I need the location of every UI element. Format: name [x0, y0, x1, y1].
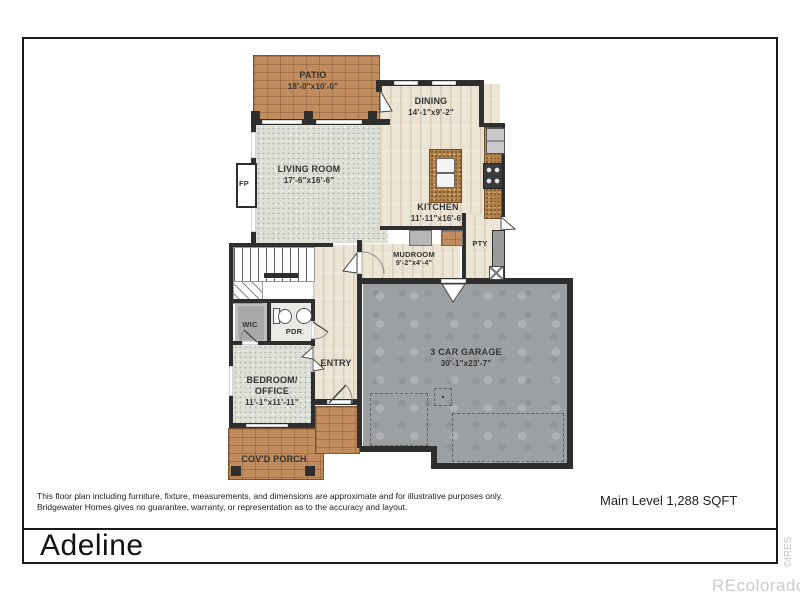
- garage-dashed-area-left: [370, 393, 428, 446]
- bedroom-window-left: [229, 366, 233, 396]
- porch-post-1: [231, 466, 241, 476]
- disclaimer-line-2: Bridgewater Homes gives no guarantee, wa…: [37, 502, 602, 513]
- dining-right-wall: [479, 80, 484, 127]
- dining-window-1: [394, 81, 418, 85]
- refrigerator: [486, 128, 505, 154]
- bedroom-window-bottom: [246, 424, 288, 427]
- stair-rail: [264, 273, 298, 278]
- recolorado-watermark: REcolorado: [712, 576, 800, 596]
- title-box: Adeline: [22, 528, 778, 564]
- patio-post-3: [368, 111, 377, 120]
- stove: [483, 163, 503, 189]
- living-bottom-wall: [229, 243, 333, 247]
- dining-top-wall: [376, 80, 484, 86]
- fireplace-box: [236, 163, 257, 208]
- living-window-top2: [316, 120, 362, 124]
- island-sink-1: [436, 158, 455, 173]
- living-window-left2: [251, 206, 256, 232]
- left-exterior-wall: [229, 299, 233, 428]
- patio-post-2: [304, 111, 313, 120]
- garage-bottom-wall-left: [360, 446, 437, 452]
- floorplan-page: PATIO 18'-0"x10'-0" DINING 14'-1"x9'-2" …: [0, 0, 800, 600]
- wic-pdr-divider-wall: [267, 303, 271, 341]
- stair-left-wall: [229, 243, 233, 303]
- pantry-left-wall: [462, 213, 466, 280]
- dining-window-2: [432, 81, 456, 85]
- porch-floor-entry: [315, 406, 360, 454]
- water-heater: [489, 266, 504, 280]
- garage-bottom-wall-right: [437, 463, 573, 469]
- level-sqft-label: Main Level 1,288 SQFT: [600, 493, 737, 508]
- garage-post-dot: [442, 396, 444, 398]
- mudroom-floor: [362, 244, 460, 280]
- bedroom-floor: [233, 345, 311, 424]
- plan-title: Adeline: [40, 529, 144, 563]
- entry-hall-floor: [313, 245, 357, 403]
- mudroom-appliance: [409, 230, 432, 246]
- bedroom-door-gap: [311, 346, 315, 372]
- wic-floor: [235, 303, 267, 343]
- garage-top-wall: [360, 278, 572, 284]
- wic-pdr-top-wall: [229, 299, 315, 303]
- pdr-sink: [296, 308, 312, 324]
- living-window-left1: [251, 132, 256, 158]
- garage-entry-door-gap: [441, 279, 466, 283]
- toilet-bowl: [278, 309, 292, 324]
- disclaimer-line-1: This floor plan including furniture, fix…: [37, 491, 602, 502]
- front-door-gap: [327, 400, 351, 404]
- mudroom-door-gap: [357, 252, 362, 274]
- porch-post-2: [305, 466, 315, 476]
- pdr-door-gap: [311, 321, 315, 339]
- living-room-floor: [256, 121, 388, 243]
- disclaimer-text: This floor plan including furniture, fix…: [37, 491, 602, 513]
- dining-left-wall-stub: [376, 80, 382, 92]
- island-sink-2: [436, 173, 455, 188]
- ires-watermark: ©IRES: [758, 522, 800, 582]
- garage-dashed-area-right: [452, 413, 564, 462]
- pantry-floor: [464, 215, 492, 280]
- living-window-top1: [262, 120, 302, 124]
- mudroom-bench: [441, 230, 463, 246]
- patio-floor: [253, 55, 380, 123]
- garage-right-wall: [567, 278, 573, 469]
- wic-door-gap: [242, 341, 258, 345]
